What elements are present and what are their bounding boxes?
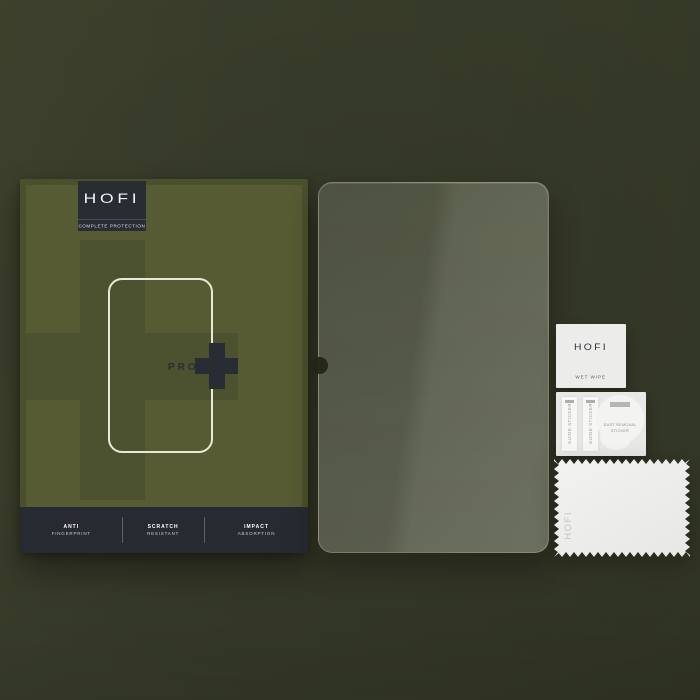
microfiber-cloth-wrap: HOFI — [554, 459, 690, 557]
camera-notch — [311, 357, 328, 374]
feature-title: ANTI — [51, 524, 90, 530]
stickers-card: GUIDE STICKER GUIDE STICKER DUST REMOVAL… — [556, 392, 646, 456]
wet-wipe-label: WET WIPE — [576, 375, 607, 380]
feature-subtitle: RESISTANT — [147, 531, 179, 536]
brand-badge: HOFI COMPLETE PROTECTION — [78, 181, 146, 231]
feature-title: SCRATCH — [147, 524, 179, 530]
features-bar: ANTI FINGERPRINT SCRATCH RESISTANT IMPAC… — [20, 507, 308, 553]
brand-logo: HOFI — [70, 190, 155, 206]
microfiber-cloth — [554, 459, 690, 557]
feature-scratch-resistant: SCRATCH RESISTANT — [123, 507, 204, 553]
sticker-dash — [610, 402, 630, 407]
cloth-brand: HOFI — [563, 511, 574, 540]
product-box: HOFI COMPLETE PROTECTION PRO ANTI FINGER… — [20, 179, 308, 553]
tagline: COMPLETE PROTECTION — [79, 223, 146, 228]
product-photo-scene: HOFI COMPLETE PROTECTION PRO ANTI FINGER… — [0, 0, 700, 700]
feature-impact-absorption: IMPACT ABSORPTION — [205, 507, 308, 553]
guide-sticker-label: GUIDE STICKER — [567, 403, 572, 444]
feature-subtitle: ABSORPTION — [238, 531, 276, 536]
wet-wipe-sachet: HOFI WET WIPE — [556, 324, 626, 388]
guide-sticker-strip: GUIDE STICKER — [562, 397, 577, 451]
feature-title: IMPACT — [238, 524, 276, 530]
guide-sticker-label: GUIDE STICKER — [588, 403, 593, 444]
plus-icon — [209, 343, 225, 389]
tempered-glass-protector — [318, 182, 549, 553]
feature-subtitle: FINGERPRINT — [51, 531, 90, 536]
tagline-strip: COMPLETE PROTECTION — [78, 219, 146, 231]
wet-wipe-brand: HOFI — [551, 342, 632, 352]
dust-removal-sticker-label: DUST REMOVAL STICKER — [594, 422, 646, 434]
feature-anti-fingerprint: ANTI FINGERPRINT — [20, 507, 122, 553]
